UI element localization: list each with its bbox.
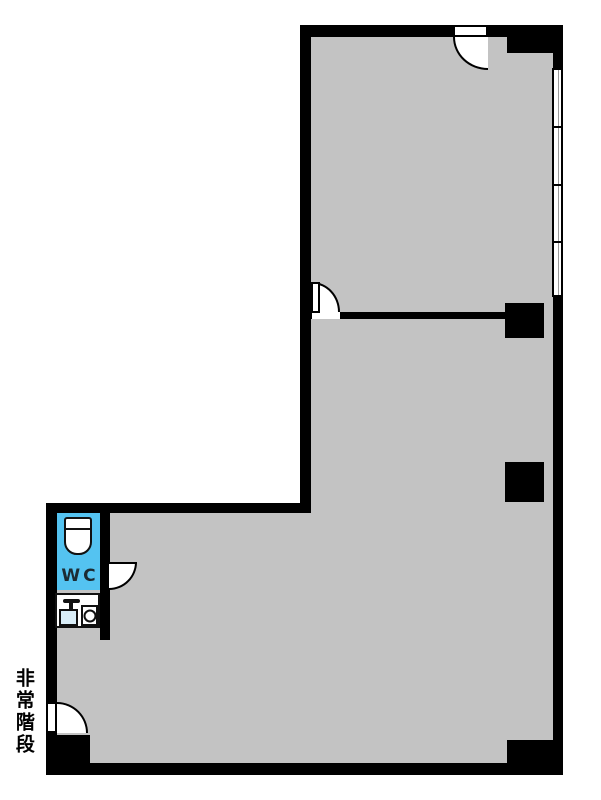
toilet-tank-line [66,528,90,530]
emergency-exit-door-leaf [46,702,57,733]
washer-pan-icon [81,605,98,626]
window-mullion [554,241,561,243]
washer-drum-icon [83,609,96,622]
wall-left-lower [46,503,57,775]
window-mullion [554,184,561,186]
wall-right-upper-stub [553,53,563,69]
corner-block-northeast [507,25,563,53]
wall-left-upper [300,25,311,513]
pillar-lower [505,462,544,502]
sink-basin-icon [59,609,78,626]
window-glass-line [558,70,559,295]
wall-bottom [46,763,563,775]
wc-label: WC [58,568,98,590]
partition-door-gap [312,312,340,319]
floor-plan-canvas: WC 非常階段 [0,0,601,800]
window-strip [552,68,563,297]
wall-right [553,297,563,775]
partition-door-leaf [311,282,320,313]
emergency-stairs-label: 非常階段 [12,668,34,772]
faucet-stem [69,602,73,611]
pillar-upper [505,303,544,338]
toilet-icon [64,517,92,555]
wall-top-lower-wing [46,503,311,513]
floor-area-upper-wing [311,37,553,763]
top-entrance-door-leaf [453,25,488,37]
window-mullion [554,126,561,128]
wall-partition [311,312,505,319]
